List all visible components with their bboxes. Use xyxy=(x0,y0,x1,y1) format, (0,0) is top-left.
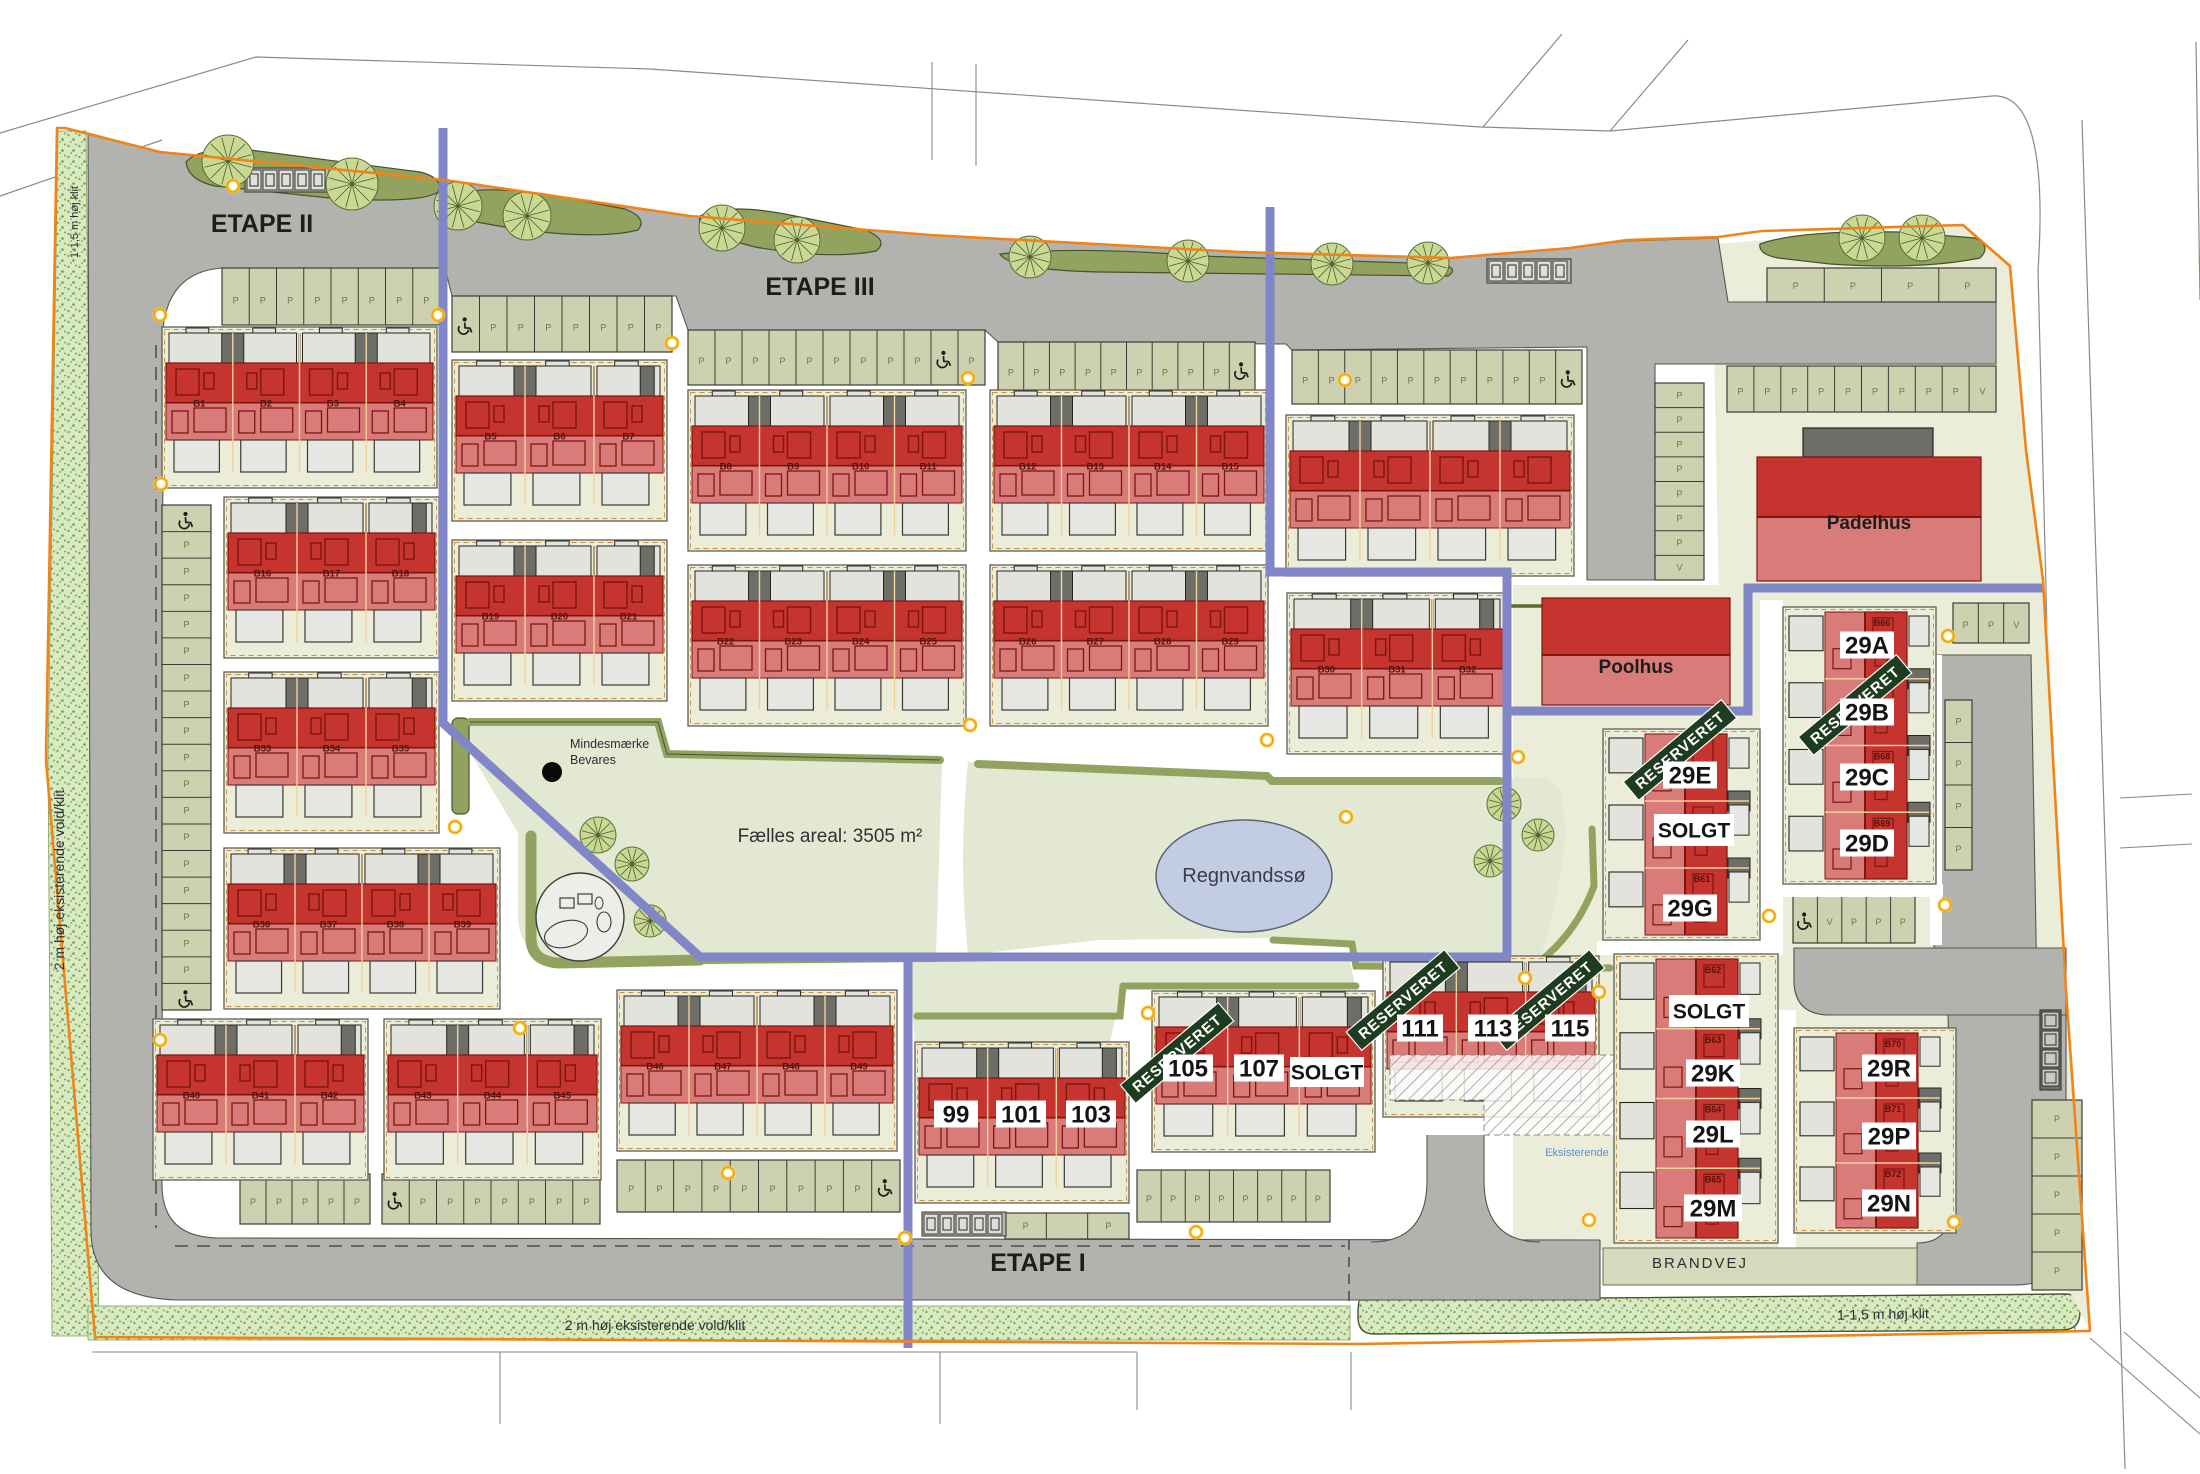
svg-text:29D: 29D xyxy=(1845,830,1889,857)
svg-text:B23: B23 xyxy=(785,637,802,648)
svg-text:B38: B38 xyxy=(387,920,404,931)
svg-text:B69: B69 xyxy=(1874,818,1891,828)
svg-text:B5: B5 xyxy=(484,432,497,443)
svg-text:111: 111 xyxy=(1401,1015,1438,1042)
svg-text:P: P xyxy=(183,832,189,842)
svg-text:P: P xyxy=(183,726,189,736)
svg-text:B40: B40 xyxy=(183,1091,200,1102)
svg-text:P: P xyxy=(1963,620,1969,630)
svg-text:B32: B32 xyxy=(1459,665,1476,676)
svg-text:B71: B71 xyxy=(1885,1104,1902,1114)
svg-text:P: P xyxy=(423,295,429,305)
svg-text:P: P xyxy=(490,323,496,333)
svg-text:B26: B26 xyxy=(1019,637,1036,648)
svg-text:P: P xyxy=(2054,1190,2060,1200)
svg-text:ETAPE II: ETAPE II xyxy=(211,210,313,238)
svg-text:P: P xyxy=(914,356,920,366)
svg-text:P: P xyxy=(183,965,189,975)
svg-text:B9: B9 xyxy=(787,462,799,473)
svg-text:P: P xyxy=(1267,1194,1273,1204)
svg-text:P: P xyxy=(573,323,579,333)
svg-text:P: P xyxy=(183,939,189,949)
svg-text:P: P xyxy=(806,356,812,366)
svg-text:B41: B41 xyxy=(252,1091,270,1102)
svg-text:V: V xyxy=(1827,917,1833,927)
svg-text:P: P xyxy=(1059,367,1065,377)
svg-text:B65: B65 xyxy=(1705,1174,1722,1184)
svg-text:P: P xyxy=(183,885,189,895)
svg-text:P: P xyxy=(855,1184,861,1194)
svg-text:P: P xyxy=(545,323,551,333)
svg-text:29G: 29G xyxy=(1667,895,1712,922)
svg-text:P: P xyxy=(1851,917,1857,927)
svg-text:P: P xyxy=(420,1197,426,1207)
svg-text:29M: 29M xyxy=(1690,1195,1737,1222)
svg-text:P: P xyxy=(2054,1228,2060,1238)
svg-text:P: P xyxy=(183,806,189,816)
svg-text:SOLGT: SOLGT xyxy=(1673,1000,1746,1023)
svg-text:105: 105 xyxy=(1168,1055,1208,1082)
svg-text:29A: 29A xyxy=(1845,632,1889,659)
svg-text:Regnvandssø: Regnvandssø xyxy=(1182,865,1305,887)
svg-text:B44: B44 xyxy=(484,1091,502,1102)
svg-text:P: P xyxy=(1355,375,1361,385)
svg-text:B16: B16 xyxy=(254,569,271,580)
svg-text:B31: B31 xyxy=(1388,665,1406,676)
svg-text:P: P xyxy=(770,1184,776,1194)
svg-text:2 m høj eksisterende vold/klit: 2 m høj eksisterende vold/klit xyxy=(565,1317,746,1333)
svg-text:Padelhus: Padelhus xyxy=(1827,513,1911,534)
svg-text:P: P xyxy=(183,699,189,709)
svg-text:B68: B68 xyxy=(1874,752,1891,762)
svg-text:P: P xyxy=(968,356,974,366)
svg-text:B70: B70 xyxy=(1885,1039,1902,1049)
svg-text:P: P xyxy=(1434,375,1440,385)
svg-text:P: P xyxy=(1487,375,1493,385)
svg-text:1-1,5 m høj klit: 1-1,5 m høj klit xyxy=(1837,1305,1929,1323)
svg-text:P: P xyxy=(1170,1194,1176,1204)
svg-text:P: P xyxy=(628,1184,634,1194)
svg-text:P: P xyxy=(1875,917,1881,927)
svg-text:B25: B25 xyxy=(920,637,938,648)
svg-text:P: P xyxy=(713,1184,719,1194)
svg-text:BRANDVEJ: BRANDVEJ xyxy=(1652,1255,1748,1272)
svg-text:P: P xyxy=(1315,1194,1321,1204)
svg-text:P: P xyxy=(628,323,634,333)
svg-text:B28: B28 xyxy=(1154,637,1171,648)
svg-text:B47: B47 xyxy=(714,1062,731,1073)
svg-text:P: P xyxy=(1988,620,1994,630)
svg-text:103: 103 xyxy=(1071,1101,1111,1128)
svg-text:B20: B20 xyxy=(551,612,568,623)
svg-text:P: P xyxy=(233,295,239,305)
svg-text:P: P xyxy=(328,1197,334,1207)
svg-text:B15: B15 xyxy=(1222,462,1240,473)
svg-text:B35: B35 xyxy=(392,744,410,755)
svg-text:B18: B18 xyxy=(392,569,409,580)
svg-text:P: P xyxy=(1213,367,1219,377)
svg-text:P: P xyxy=(1023,1221,1029,1231)
svg-text:P: P xyxy=(1218,1194,1224,1204)
svg-text:P: P xyxy=(518,323,524,333)
svg-text:P: P xyxy=(183,779,189,789)
svg-text:P: P xyxy=(1764,387,1770,397)
svg-text:P: P xyxy=(1085,367,1091,377)
svg-text:B61: B61 xyxy=(1694,874,1711,884)
svg-text:P: P xyxy=(1676,538,1682,548)
svg-text:P: P xyxy=(655,323,661,333)
svg-text:29C: 29C xyxy=(1845,764,1889,791)
svg-text:P: P xyxy=(1955,844,1961,854)
svg-text:P: P xyxy=(1034,367,1040,377)
svg-text:P: P xyxy=(502,1197,508,1207)
svg-text:ETAPE I: ETAPE I xyxy=(990,1249,1085,1277)
svg-text:P: P xyxy=(1818,387,1824,397)
svg-text:P: P xyxy=(314,295,320,305)
svg-text:P: P xyxy=(1146,1194,1152,1204)
svg-text:Bevares: Bevares xyxy=(570,753,616,767)
svg-text:B6: B6 xyxy=(553,432,565,443)
svg-text:29N: 29N xyxy=(1867,1190,1911,1217)
svg-text:B63: B63 xyxy=(1705,1035,1722,1045)
svg-text:Fælles areal: 3505 m²: Fælles areal: 3505 m² xyxy=(738,826,923,847)
svg-text:Poolhus: Poolhus xyxy=(1599,657,1674,678)
svg-text:P: P xyxy=(1737,387,1743,397)
svg-text:P: P xyxy=(1926,387,1932,397)
svg-text:P: P xyxy=(698,356,704,366)
svg-text:B7: B7 xyxy=(622,432,634,443)
svg-text:V: V xyxy=(1980,387,1986,397)
svg-text:P: P xyxy=(2054,1114,2060,1124)
svg-text:B43: B43 xyxy=(414,1091,431,1102)
svg-text:P: P xyxy=(1676,489,1682,499)
svg-text:P: P xyxy=(1676,513,1682,523)
svg-text:P: P xyxy=(798,1184,804,1194)
svg-text:B2: B2 xyxy=(260,399,272,410)
svg-text:115: 115 xyxy=(1551,1015,1590,1042)
svg-text:P: P xyxy=(396,295,402,305)
svg-text:P: P xyxy=(1408,375,1414,385)
svg-text:P: P xyxy=(183,912,189,922)
svg-text:P: P xyxy=(1955,716,1961,726)
svg-text:B17: B17 xyxy=(323,569,340,580)
svg-text:29K: 29K xyxy=(1691,1060,1736,1087)
svg-text:B64: B64 xyxy=(1705,1105,1722,1115)
svg-text:B34: B34 xyxy=(323,744,341,755)
svg-text:P: P xyxy=(1539,375,1545,385)
svg-text:B66: B66 xyxy=(1874,618,1891,628)
svg-text:ETAPE III: ETAPE III xyxy=(765,273,874,301)
svg-text:P: P xyxy=(354,1197,360,1207)
svg-text:B45: B45 xyxy=(553,1091,571,1102)
svg-text:P: P xyxy=(369,295,375,305)
svg-text:B39: B39 xyxy=(454,920,471,931)
svg-text:B11: B11 xyxy=(920,462,938,473)
svg-text:B37: B37 xyxy=(320,920,337,931)
svg-text:P: P xyxy=(276,1197,282,1207)
svg-text:107: 107 xyxy=(1239,1055,1279,1082)
svg-text:P: P xyxy=(1676,440,1682,450)
svg-text:B24: B24 xyxy=(852,637,870,648)
svg-text:P: P xyxy=(1460,375,1466,385)
svg-text:P: P xyxy=(1194,1194,1200,1204)
svg-text:B36: B36 xyxy=(253,920,270,931)
svg-text:P: P xyxy=(1964,281,1970,291)
svg-text:B8: B8 xyxy=(720,462,732,473)
svg-text:P: P xyxy=(887,356,893,366)
svg-text:B48: B48 xyxy=(782,1062,799,1073)
svg-text:B72: B72 xyxy=(1885,1169,1902,1179)
svg-text:29B: 29B xyxy=(1845,699,1889,726)
svg-text:B10: B10 xyxy=(852,462,869,473)
svg-text:B14: B14 xyxy=(1154,462,1172,473)
svg-text:B22: B22 xyxy=(717,637,734,648)
svg-text:Eksisterende: Eksisterende xyxy=(1545,1147,1609,1159)
svg-text:P: P xyxy=(725,356,731,366)
svg-text:P: P xyxy=(183,540,189,550)
svg-text:P: P xyxy=(779,356,785,366)
svg-text:P: P xyxy=(1513,375,1519,385)
svg-text:B49: B49 xyxy=(850,1062,867,1073)
svg-text:P: P xyxy=(1302,375,1308,385)
svg-text:B13: B13 xyxy=(1087,462,1104,473)
svg-text:P: P xyxy=(1793,281,1799,291)
svg-text:P: P xyxy=(600,323,606,333)
svg-text:P: P xyxy=(183,673,189,683)
svg-text:29P: 29P xyxy=(1868,1123,1911,1150)
svg-text:P: P xyxy=(1676,390,1682,400)
svg-text:P: P xyxy=(1676,415,1682,425)
svg-text:P: P xyxy=(556,1197,562,1207)
svg-text:P: P xyxy=(1329,375,1335,385)
svg-text:P: P xyxy=(1243,1194,1249,1204)
svg-text:P: P xyxy=(2054,1266,2060,1276)
svg-text:P: P xyxy=(183,646,189,656)
svg-text:B30: B30 xyxy=(1318,665,1335,676)
svg-text:P: P xyxy=(1105,1221,1111,1231)
svg-text:B27: B27 xyxy=(1087,637,1104,648)
svg-text:2 m høj eksisterende vold/klit: 2 m høj eksisterende vold/klit xyxy=(51,790,67,971)
svg-text:B12: B12 xyxy=(1019,462,1036,473)
svg-text:B21: B21 xyxy=(620,612,638,623)
svg-text:B42: B42 xyxy=(321,1091,338,1102)
svg-text:P: P xyxy=(1162,367,1168,377)
svg-text:P: P xyxy=(1955,801,1961,811)
svg-text:P: P xyxy=(1791,387,1797,397)
svg-text:P: P xyxy=(1955,759,1961,769)
svg-text:B33: B33 xyxy=(254,744,271,755)
svg-text:Mindesmærke: Mindesmærke xyxy=(570,737,649,751)
svg-text:29L: 29L xyxy=(1692,1121,1733,1148)
svg-text:P: P xyxy=(752,356,758,366)
svg-text:P: P xyxy=(2054,1152,2060,1162)
svg-text:P: P xyxy=(860,356,866,366)
svg-text:P: P xyxy=(1188,367,1194,377)
svg-text:P: P xyxy=(656,1184,662,1194)
svg-text:B19: B19 xyxy=(482,612,499,623)
svg-text:P: P xyxy=(1291,1194,1297,1204)
svg-text:29E: 29E xyxy=(1669,762,1712,789)
svg-text:B62: B62 xyxy=(1705,965,1722,975)
svg-text:101: 101 xyxy=(1001,1101,1041,1128)
svg-text:P: P xyxy=(1872,387,1878,397)
svg-text:P: P xyxy=(1008,367,1014,377)
svg-text:SOLGT: SOLGT xyxy=(1658,819,1731,842)
svg-text:P: P xyxy=(250,1197,256,1207)
svg-text:P: P xyxy=(183,753,189,763)
svg-text:P: P xyxy=(183,593,189,603)
svg-text:P: P xyxy=(1850,281,1856,291)
svg-text:P: P xyxy=(1900,917,1906,927)
svg-text:P: P xyxy=(1676,464,1682,474)
svg-text:P: P xyxy=(183,566,189,576)
svg-text:B29: B29 xyxy=(1222,637,1239,648)
svg-text:B4: B4 xyxy=(394,399,407,410)
svg-text:P: P xyxy=(1136,367,1142,377)
svg-text:113: 113 xyxy=(1474,1015,1513,1042)
svg-text:P: P xyxy=(1381,375,1387,385)
svg-text:B1: B1 xyxy=(193,399,206,410)
svg-text:P: P xyxy=(474,1197,480,1207)
svg-text:P: P xyxy=(583,1197,589,1207)
svg-text:99: 99 xyxy=(943,1101,970,1128)
svg-text:29R: 29R xyxy=(1867,1055,1911,1082)
svg-text:P: P xyxy=(833,356,839,366)
svg-text:P: P xyxy=(1953,387,1959,397)
svg-text:P: P xyxy=(685,1184,691,1194)
svg-text:P: P xyxy=(287,295,293,305)
svg-text:P: P xyxy=(183,620,189,630)
svg-text:P: P xyxy=(529,1197,535,1207)
svg-text:V: V xyxy=(1676,563,1682,573)
svg-text:P: P xyxy=(1845,387,1851,397)
svg-text:P: P xyxy=(302,1197,308,1207)
svg-text:P: P xyxy=(447,1197,453,1207)
svg-text:B3: B3 xyxy=(327,399,339,410)
svg-text:P: P xyxy=(1907,281,1913,291)
svg-text:P: P xyxy=(260,295,266,305)
svg-text:P: P xyxy=(741,1184,747,1194)
svg-text:P: P xyxy=(1899,387,1905,397)
svg-text:SOLGT: SOLGT xyxy=(1291,1061,1364,1084)
svg-text:B46: B46 xyxy=(646,1062,663,1073)
svg-text:P: P xyxy=(826,1184,832,1194)
svg-text:1-1,5 m høj klit: 1-1,5 m høj klit xyxy=(69,186,81,258)
svg-text:P: P xyxy=(183,859,189,869)
svg-text:V: V xyxy=(2013,620,2019,630)
svg-text:P: P xyxy=(342,295,348,305)
svg-text:P: P xyxy=(1111,367,1117,377)
